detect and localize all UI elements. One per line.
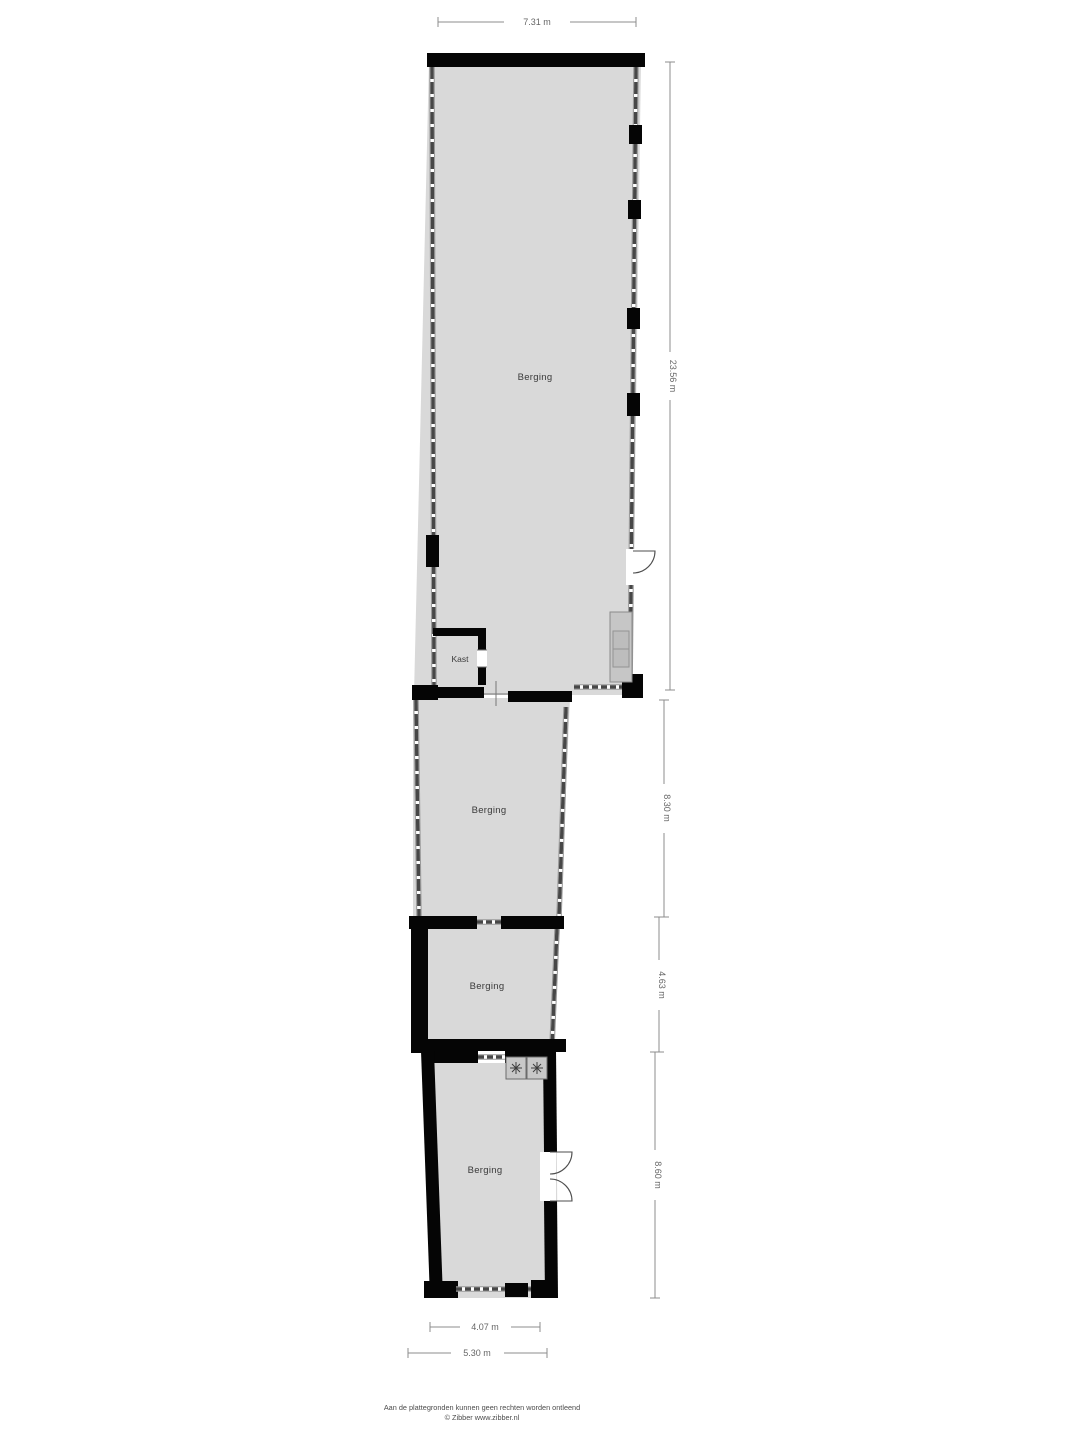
dimension-bottom-inner-width: 4.07 m (430, 1322, 540, 1332)
room-label-berging-small: Berging (470, 981, 505, 992)
wall-small-left (411, 916, 428, 1053)
dimension-bottom-outer-width: 5.30 m (408, 1348, 547, 1358)
wall-post (628, 200, 641, 219)
washer-icon (527, 1057, 547, 1079)
dimension-bottom-height: 8.60 m (650, 1052, 663, 1298)
wall-bottom-bottom-mid (505, 1283, 528, 1297)
kast-door-gap (477, 650, 487, 667)
wall-main-top (427, 53, 645, 67)
wall-post (627, 393, 640, 416)
dimension-label: 5.30 m (463, 1348, 491, 1358)
dimension-label: 7.31 m (523, 17, 551, 27)
wall-window-main-left (432, 67, 434, 690)
double-door-opening (540, 1152, 556, 1201)
dimension-label: 23.56 m (668, 360, 678, 393)
wall-junction-block (412, 685, 438, 700)
dimension-label: 8.30 m (662, 794, 672, 822)
room-label-kast: Kast (451, 654, 469, 664)
wall-post (627, 308, 640, 329)
wall-window-middle-left (416, 699, 419, 917)
room-label-berging-main: Berging (518, 372, 553, 383)
washer-icon (506, 1057, 526, 1079)
dimension-total-height: 23.56 m (665, 62, 678, 690)
dimension-middle-height: 8.30 m (659, 700, 672, 917)
dimension-label: 4.07 m (471, 1322, 499, 1332)
wall-bottom-bottom-right (531, 1280, 548, 1298)
kitchen-unit (610, 612, 632, 682)
wall-post (426, 535, 439, 567)
floorplan-canvas: Berging Kast Berging Berging Berging 7.3… (0, 0, 1080, 1440)
footer-disclaimer: Aan de plattegronden kunnen geen rechten… (384, 1403, 580, 1412)
wall-post (629, 125, 642, 144)
wall-bottom-bottom-left (424, 1281, 458, 1298)
room-label-berging-middle: Berging (472, 805, 507, 816)
dimension-top-width: 7.31 m (438, 17, 636, 27)
footer-copyright: © Zibber www.zibber.nl (445, 1413, 520, 1422)
wall-main-bottom-right (508, 691, 572, 702)
dimension-label: 4.63 m (657, 971, 667, 999)
wall-middle-bottom-right (501, 916, 564, 929)
door-opening (626, 549, 638, 585)
dimension-small-height: 4.63 m (654, 917, 667, 1052)
dimension-label: 8.60 m (653, 1161, 663, 1189)
room-label-berging-bottom: Berging (468, 1165, 503, 1176)
wall-main-bottom-left (436, 687, 484, 698)
wall-small-bottom (411, 1039, 566, 1052)
